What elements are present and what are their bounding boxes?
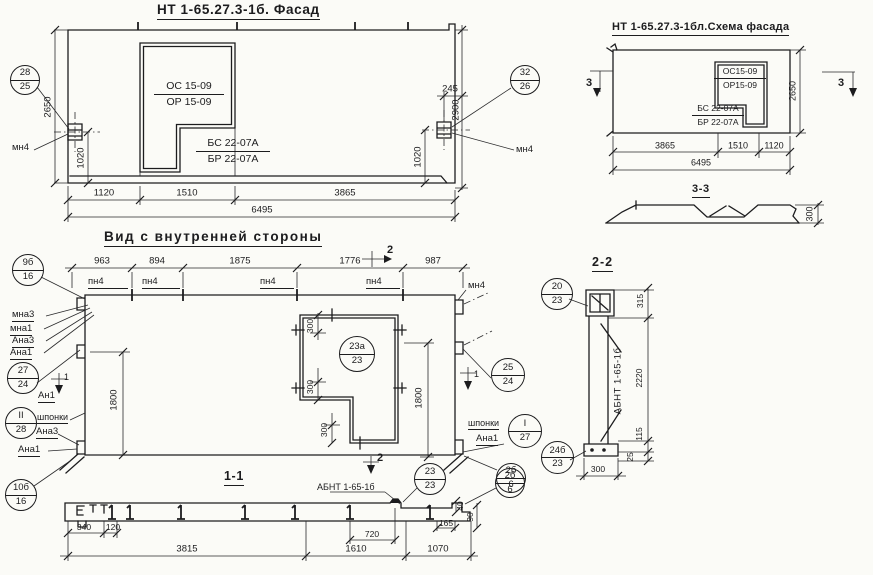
dim-6495-schema: 6495	[691, 159, 711, 168]
dim-1020-right: 1020	[413, 146, 423, 167]
callout-den: 27	[509, 432, 541, 443]
section-2-2-title: 2-2	[592, 256, 613, 272]
inner-view-title: Вид с внутренней стороны	[104, 230, 322, 247]
dim-1070: 1070	[427, 544, 448, 554]
callout-24b-23: 24б 23	[541, 441, 574, 474]
label-ana1: Ана1	[10, 348, 32, 360]
dim-2650-facade: 2650	[43, 96, 53, 117]
callout-den: 26	[511, 81, 539, 92]
callout-num: 23а	[340, 342, 374, 354]
callout-20-23: 20 23	[541, 278, 573, 310]
window-series-label: ОС15-09	[714, 66, 766, 79]
dim-120: 120	[106, 523, 120, 532]
callout-den: 16	[13, 271, 43, 282]
facade-balcony-label: БС 22-07А БР 22-07А	[196, 137, 270, 166]
dim-720: 720	[365, 530, 379, 539]
dim-300-b: 300	[306, 380, 315, 394]
dim-2220: 2220	[635, 369, 644, 388]
schema-title: НТ 1-65.27.3-1бл.Схема фасада	[612, 22, 789, 36]
anchor-label-mn4-inner: мн4	[468, 281, 485, 291]
window-frame-label: ОР 15-09	[154, 95, 224, 109]
dim-1510-schema: 1510	[728, 142, 748, 151]
label-ana1-right: Ана1	[476, 434, 498, 446]
callout-num: 23	[415, 467, 445, 479]
callout-den: 25	[11, 81, 39, 92]
callout-den: 23	[415, 480, 445, 491]
dim-3865: 3865	[334, 188, 355, 198]
dim-1610: 1610	[345, 544, 366, 554]
dim-1776: 1776	[339, 256, 360, 266]
dim-25: 25	[626, 452, 635, 461]
callout-num: II	[6, 411, 36, 423]
anchor-label-mn4-left: мн4	[12, 143, 29, 153]
dim-1800-left: 1800	[109, 389, 119, 410]
label-ana1-bottom: Ана1	[18, 445, 40, 457]
section-mark-2-bottom: 2	[377, 453, 383, 464]
callout-den: 6	[496, 484, 524, 495]
callout-i-27: I 27	[508, 414, 542, 448]
dim-894: 894	[149, 256, 165, 266]
dim-1020-left: 1020	[76, 147, 86, 168]
dim-3865-schema: 3865	[655, 142, 675, 151]
label-ana3: Ана3	[12, 336, 34, 348]
callout-num: I	[509, 419, 541, 431]
dim-300-s22: 300	[591, 465, 605, 474]
dim-245: 245	[442, 84, 458, 94]
callout-ii-28: II 28	[5, 407, 37, 439]
section-mark-1-right: 1	[474, 370, 479, 379]
label-mna3: мна3	[12, 310, 34, 322]
callout-num: 32	[511, 68, 539, 80]
callout-den: 23	[542, 295, 572, 306]
callout-num: 2б	[496, 471, 524, 483]
label-abnt-s11: АБНТ 1-65-1б	[317, 483, 375, 492]
dim-2900: 2900	[451, 99, 461, 120]
label-an1: Ан1	[38, 391, 55, 403]
dim-90: 90	[466, 512, 475, 521]
label-mna1: мна1	[10, 324, 32, 336]
section-3-3-title: 3-3	[692, 184, 710, 198]
callout-den: 23	[542, 458, 573, 469]
window-series-label: ОС 15-09	[154, 80, 224, 95]
section-mark-2-top: 2	[387, 245, 393, 256]
callout-num: 24б	[542, 446, 573, 458]
dim-1120: 1120	[94, 188, 114, 198]
callout-25-24: 25 24	[491, 358, 525, 392]
callout-27-24: 27 24	[7, 362, 39, 394]
callout-10b-16: 10б 16	[5, 479, 37, 511]
section-mark-3-left: 3	[586, 78, 592, 89]
dim-115: 115	[635, 427, 644, 441]
dim-300-a: 300	[306, 319, 315, 333]
dim-987: 987	[425, 256, 441, 266]
callout-32-26: 32 26	[510, 65, 540, 95]
callout-den: 23	[340, 355, 374, 366]
dim-1800-right: 1800	[414, 387, 424, 408]
callout-num: 25	[492, 363, 524, 375]
dim-2650-schema: 2650	[789, 81, 798, 101]
anchor-label-mn4-right: мн4	[516, 145, 533, 155]
callout-den: 24	[8, 379, 38, 390]
dim-1120-schema: 1120	[764, 142, 783, 151]
label-ana3-bottom: Ана3	[36, 427, 58, 439]
window-frame-label: ОР15-09	[714, 79, 766, 91]
dim-6495: 6495	[251, 205, 272, 215]
callout-2b-6-s11: 2б 6	[495, 468, 525, 498]
balcony-frame-label: БР 22-07А	[692, 116, 744, 128]
callout-num: 20	[542, 282, 572, 294]
callout-9b-16: 9б 16	[12, 254, 44, 286]
section-mark-1-left: 1	[64, 373, 69, 382]
callout-num: 27	[8, 366, 38, 378]
schema-balcony-label: БС 22-07А БР 22-07А	[692, 103, 744, 127]
dim-165: 165	[439, 519, 453, 528]
drawing-sheet: НТ 1-65.27.3-1б. Фасад ОС 15-09 ОР 15-09…	[0, 0, 873, 575]
label-pn4-2: пн4	[142, 277, 180, 289]
dim-315: 315	[636, 294, 645, 308]
label-shponki-right: шпонки	[468, 419, 499, 430]
balcony-frame-label: БР 22-07А	[196, 152, 270, 166]
balcony-series-label: БС 22-07А	[692, 103, 744, 116]
callout-den: 16	[6, 496, 36, 507]
facade-window-label: ОС 15-09 ОР 15-09	[154, 80, 224, 109]
dim-340: 340	[77, 523, 91, 532]
callout-23a-23: 23а 23	[339, 336, 375, 372]
label-pn4-4: пн4	[366, 277, 400, 289]
dim-300-s33: 300	[806, 206, 815, 221]
balcony-series-label: БС 22-07А	[196, 137, 270, 152]
label-pn4-3: пн4	[260, 277, 294, 289]
callout-28-25: 28 25	[10, 65, 40, 95]
facade-title: НТ 1-65.27.3-1б. Фасад	[157, 3, 320, 20]
section-mark-3-right: 3	[838, 78, 844, 89]
schema-window-label: ОС15-09 ОР15-09	[714, 66, 766, 90]
dim-3815: 3815	[176, 544, 197, 554]
callout-den: 28	[6, 424, 36, 435]
centre-lines	[54, 110, 492, 345]
callout-num: 10б	[6, 483, 36, 495]
label-shponki-left: шпонки	[37, 413, 68, 424]
callout-23-23: 23 23	[414, 463, 446, 495]
section-1-1-title: 1-1	[224, 470, 244, 486]
dim-40: 40	[456, 501, 465, 510]
callout-num: 28	[11, 68, 39, 80]
callout-num: 9б	[13, 258, 43, 270]
callout-den: 24	[492, 376, 524, 387]
dim-963: 963	[94, 256, 110, 266]
dim-1510: 1510	[176, 188, 197, 198]
label-abnt-s22: АБНТ 1-65-1б	[613, 348, 623, 415]
dim-300-c: 300	[320, 423, 329, 437]
dim-1875: 1875	[229, 256, 250, 266]
label-pn4-1: пн4	[88, 277, 128, 289]
